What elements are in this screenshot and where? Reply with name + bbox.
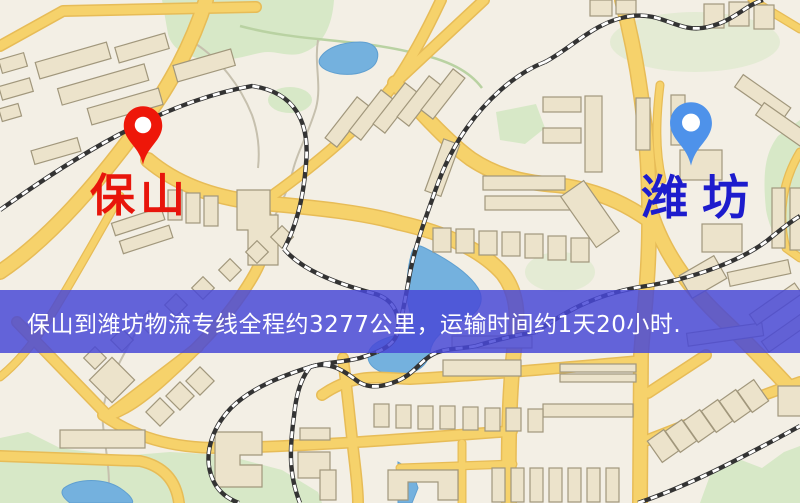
banner-text: 保山到潍坊物流专线全程约3277公里，运输时间约1天20小时. <box>0 305 681 339</box>
origin-label: 保山 <box>90 173 190 218</box>
destination-pin-icon <box>666 101 716 168</box>
map-canvas <box>0 0 800 503</box>
origin-pin-icon <box>121 104 165 168</box>
destination-label: 潍坊 <box>641 175 763 222</box>
logistics-route-map: 保山到潍坊物流专线全程约3277公里，运输时间约1天20小时. 保山 潍坊 <box>0 0 800 503</box>
info-banner: 保山到潍坊物流专线全程约3277公里，运输时间约1天20小时. <box>0 290 800 353</box>
